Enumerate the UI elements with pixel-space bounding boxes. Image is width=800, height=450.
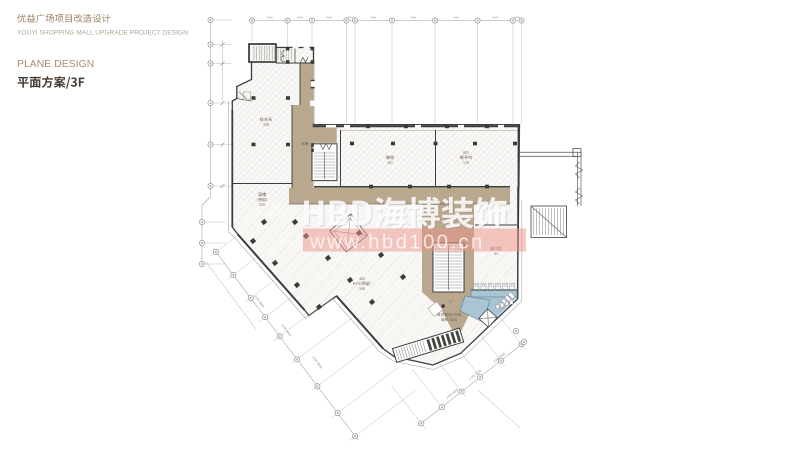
svg-text:2-(4) 3300: 2-(4) 3300	[253, 294, 265, 308]
svg-text:2-(4) 3300: 2-(4) 3300	[445, 387, 459, 399]
svg-text:www.hbd100.cn: www.hbd100.cn	[309, 230, 485, 253]
svg-text:2-(4) 3300: 2-(4) 3300	[311, 355, 323, 369]
svg-text:PLANE DESIGN: PLANE DESIGN	[17, 59, 94, 70]
svg-text:YOUYI SHOPPING MALL UPGRADE PR: YOUYI SHOPPING MALL UPGRADE PROJECT DESI…	[17, 30, 188, 37]
